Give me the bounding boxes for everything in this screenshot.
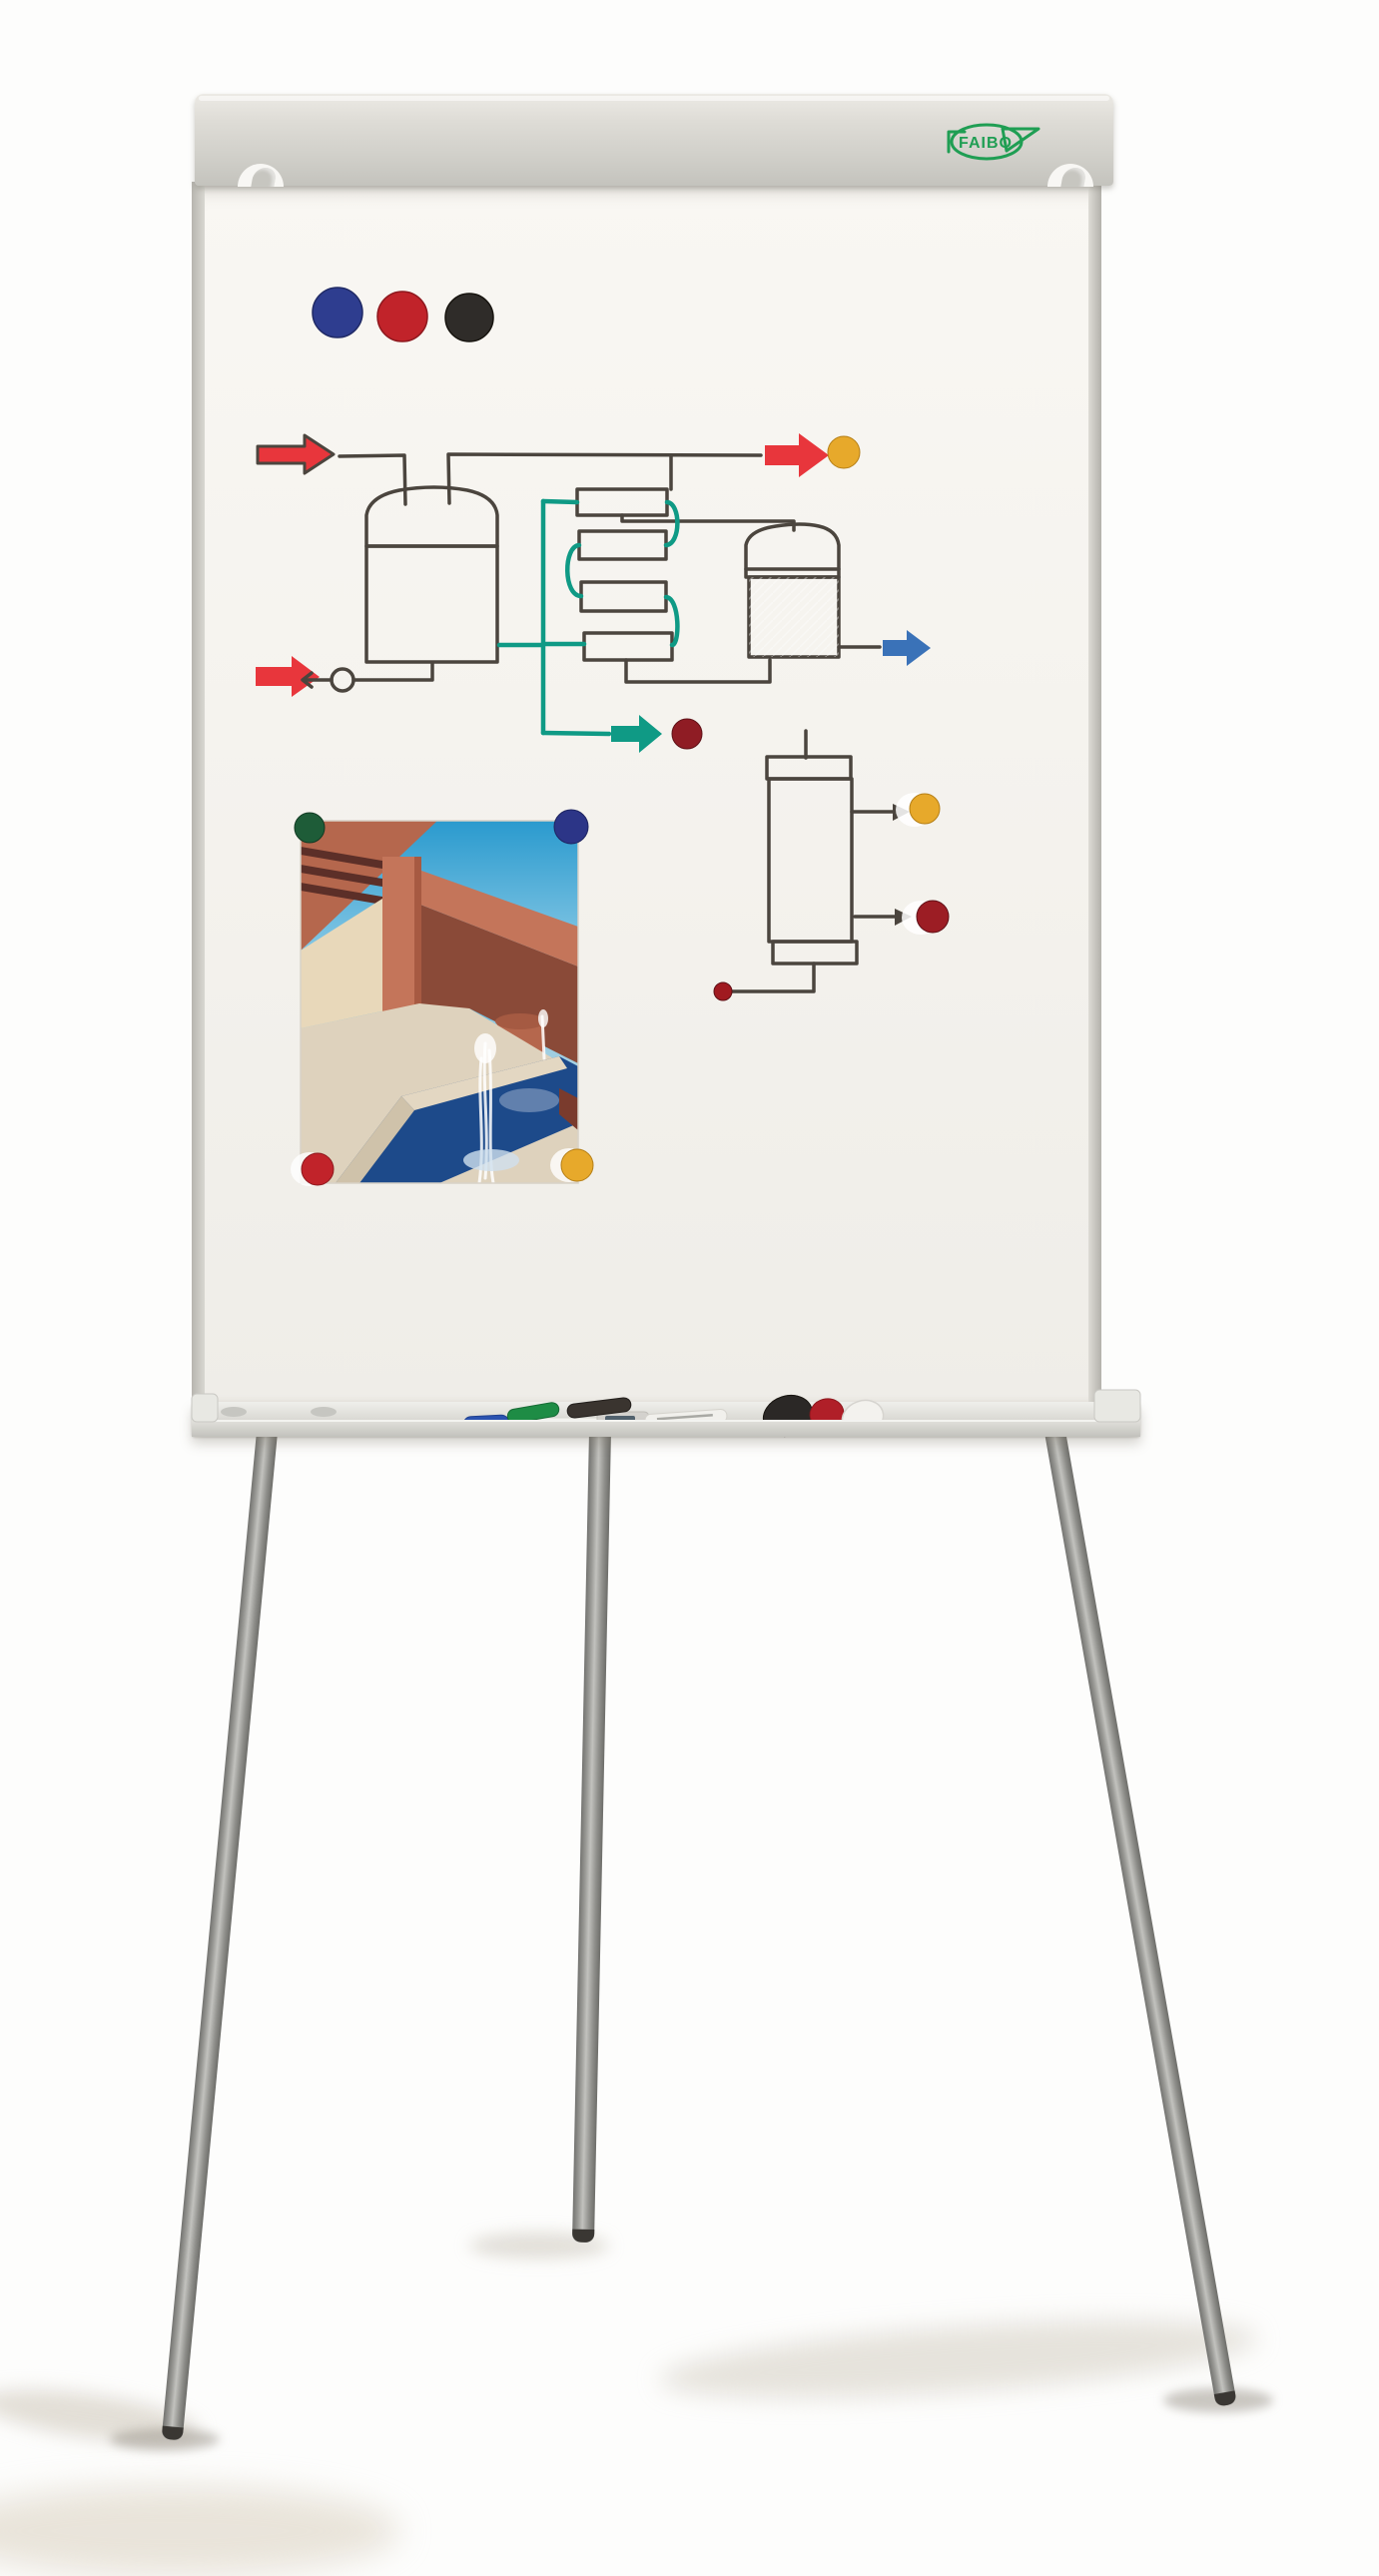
tray-screw-bump bbox=[221, 1407, 247, 1417]
magnet-navy-photo bbox=[554, 810, 588, 844]
column-bottoms-line bbox=[732, 964, 814, 991]
column-top-band bbox=[767, 757, 851, 779]
magnet-yellow-diagram bbox=[828, 436, 860, 468]
exchanger-blocks bbox=[577, 489, 672, 660]
magnet-green-photo bbox=[295, 813, 325, 843]
magnet-black bbox=[445, 294, 493, 341]
photo-image bbox=[301, 821, 578, 1188]
tray-front-lip bbox=[192, 1420, 1140, 1437]
magnet-blue bbox=[313, 288, 362, 337]
magnet-red bbox=[377, 292, 427, 341]
magnet-yellow-photo bbox=[561, 1149, 593, 1181]
block-4 bbox=[584, 633, 672, 660]
red-product-arrow-icon bbox=[765, 433, 829, 477]
tank2-sheen bbox=[749, 577, 839, 657]
magnet-row bbox=[313, 288, 493, 341]
block-3 bbox=[581, 582, 666, 611]
block-1 bbox=[577, 489, 667, 515]
column-body bbox=[769, 779, 852, 942]
magnet-darkred-column bbox=[917, 901, 949, 933]
blue-outlet-arrow-icon bbox=[883, 630, 931, 666]
red-feed-arrow-top-icon bbox=[258, 435, 334, 473]
magnet-yellow-column bbox=[910, 794, 940, 824]
teal-product-arrow-icon bbox=[611, 715, 662, 753]
pinned-photo bbox=[291, 810, 593, 1188]
board-contents bbox=[0, 0, 1379, 2556]
tray-screw-bump bbox=[311, 1407, 337, 1417]
magnet-red-photo bbox=[302, 1153, 334, 1185]
red-feed-arrow-bottom-icon bbox=[256, 656, 320, 697]
tank1-dome bbox=[366, 487, 497, 546]
process-flow-diagram bbox=[256, 433, 931, 753]
column-bottom-band bbox=[773, 942, 857, 964]
block-2 bbox=[579, 531, 666, 559]
pipe-pump-right bbox=[353, 663, 432, 680]
tray-end-clamp-right bbox=[1094, 1390, 1140, 1422]
pump-circle bbox=[332, 669, 353, 691]
pipe-block4-tank2-bottom bbox=[626, 660, 770, 682]
column-diagram bbox=[714, 731, 949, 1000]
tray-end-clamp-left bbox=[192, 1394, 218, 1422]
magnet-darkred-diagram bbox=[672, 719, 702, 749]
teal-recycle-loop bbox=[499, 501, 677, 753]
tank1-body bbox=[366, 546, 497, 662]
product-photo-scene: { "scene": { "title": "Magnetic whiteboa… bbox=[0, 0, 1379, 2556]
magnet-small-red bbox=[714, 982, 732, 1000]
pipe-overhead bbox=[448, 454, 761, 503]
tray-items bbox=[192, 1389, 1140, 1442]
pipe-feed-top bbox=[340, 455, 405, 504]
